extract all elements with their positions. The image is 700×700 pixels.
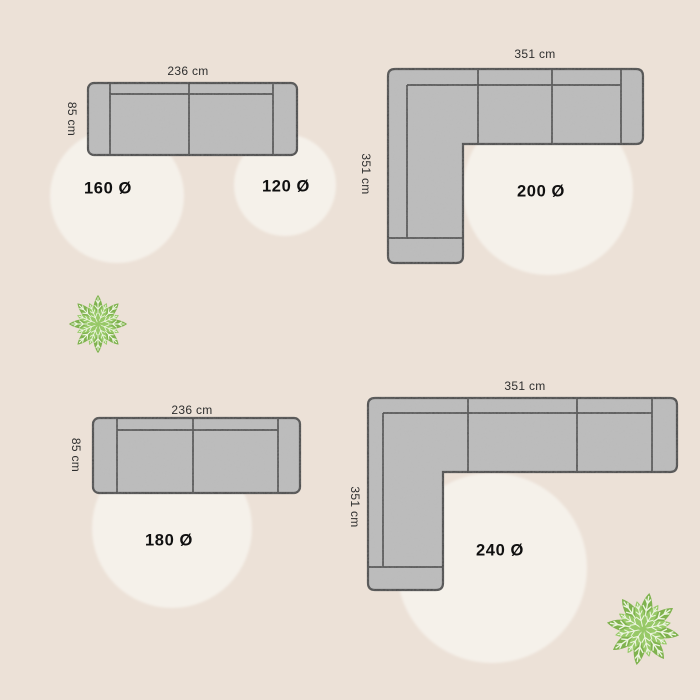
diagram-canvas — [0, 0, 700, 700]
plant-top-view-icon — [69, 295, 127, 353]
width-dimension-label: 236 cm — [167, 64, 208, 78]
rug-diameter-label: 120 Ø — [262, 178, 310, 197]
room-layout-diagram: 236 cm 85 cm 351 cm 351 cm 236 cm 85 cm … — [0, 0, 700, 700]
width-dimension-label: 351 cm — [514, 47, 555, 61]
rug-diameter-label: 180 Ø — [145, 532, 193, 551]
rug-diameter-label: 160 Ø — [84, 180, 132, 199]
depth-dimension-label: 351 cm — [359, 153, 373, 194]
depth-dimension-label: 85 cm — [69, 438, 83, 472]
width-dimension-label: 351 cm — [504, 379, 545, 393]
depth-dimension-label: 85 cm — [65, 102, 79, 136]
sofa-three-seat-bottom-left — [93, 418, 300, 493]
plant-top-view-icon — [606, 592, 680, 666]
rug-diameter-label: 240 Ø — [476, 542, 524, 561]
rug-diameter-label: 200 Ø — [517, 183, 565, 202]
depth-dimension-label: 351 cm — [348, 486, 362, 527]
width-dimension-label: 236 cm — [171, 403, 212, 417]
sofa-three-seat-top-left — [88, 83, 297, 155]
